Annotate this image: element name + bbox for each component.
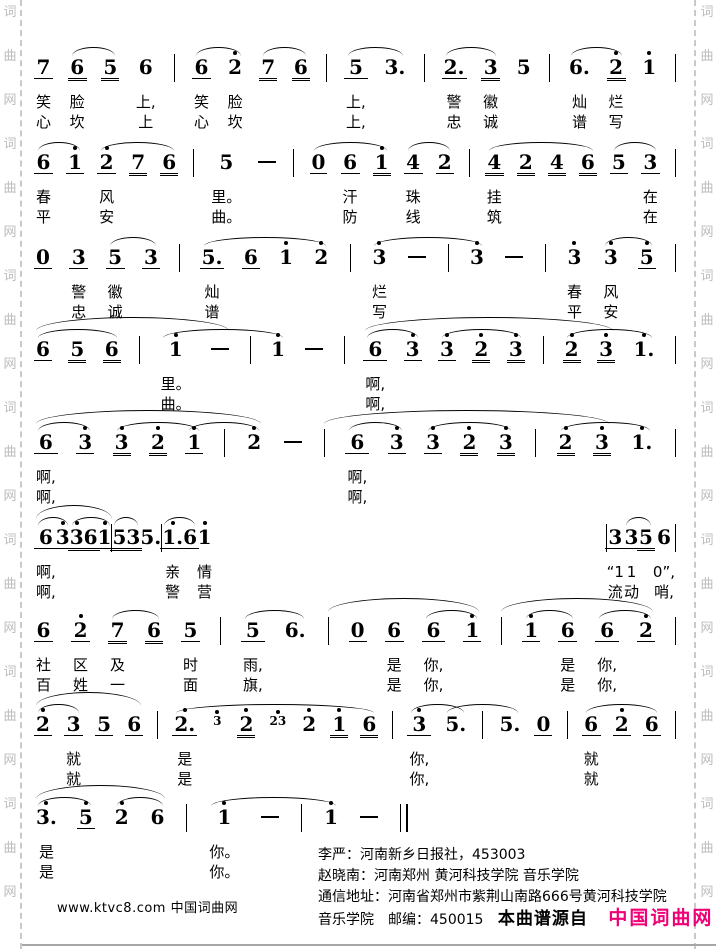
lyric-line2: 安 (99, 207, 114, 227)
note-cell: 6就就 (584, 707, 599, 789)
note-cell: 5.灿谱 (202, 240, 223, 322)
note-cell: 6汗防 (343, 145, 358, 227)
barline (224, 429, 225, 457)
lyric-line1: 烂 (372, 282, 387, 302)
note-number: 2 (565, 338, 579, 360)
note-number: 2 (74, 619, 88, 641)
barline (535, 429, 536, 457)
note-number: 1 (524, 619, 538, 641)
note-cell: 3 (115, 425, 129, 507)
slur-arc (176, 704, 374, 713)
lyric-line1: 笑 (36, 92, 51, 112)
lyric-line1: 时 (183, 655, 198, 675)
note-number: 5 (184, 619, 198, 641)
note-number: 3 (599, 338, 613, 360)
note-number: 6 (657, 526, 671, 548)
lyric-line2: 哨, (654, 582, 674, 602)
note-cell: 7笑心 (36, 50, 51, 132)
note-number: 2 (438, 151, 452, 173)
note-cell: 2 (559, 425, 573, 507)
note-number: 2 (559, 431, 573, 453)
note-number: 6 (194, 56, 208, 78)
lyric-line2: 安 (603, 302, 618, 322)
note-number: 3 (484, 56, 498, 78)
note-cell: 3 (509, 332, 523, 414)
note-number: 1 (332, 713, 346, 735)
note-number: 6 (584, 713, 598, 735)
note-number: 3 (499, 431, 513, 453)
note-cell: 5 (612, 145, 626, 227)
note-number: 4 (550, 151, 564, 173)
lyric-line1: 警 (447, 92, 462, 112)
note-cell: 3警忠 (71, 240, 86, 322)
note-cell: 0 (536, 707, 550, 789)
note-number: 2 (100, 151, 114, 173)
note-cell: 2脸坎 (228, 50, 243, 132)
slur-arc (571, 47, 622, 56)
note-number: 5 (103, 56, 117, 78)
note-cell: 1. (631, 425, 652, 507)
lyric-line2: 旗, (243, 675, 263, 695)
note-number: 6 (368, 338, 382, 360)
barline (675, 54, 676, 82)
note-cell: 3 (56, 520, 70, 602)
lyric-line1: 脸 (228, 92, 243, 112)
barline (675, 711, 676, 739)
note-cell: 6啊,啊, (36, 520, 56, 602)
lyric-line1: 挂 (487, 187, 502, 207)
note-cell: 2 (639, 613, 653, 695)
slur-arc (164, 517, 195, 526)
held-note-dash (211, 348, 229, 350)
lyric-line1: 1 (627, 562, 637, 582)
barline (392, 711, 393, 739)
note-cell: 6 (581, 145, 595, 227)
note-cell: 2 (247, 425, 261, 507)
note-cell: 7 (261, 50, 275, 132)
note-cell: 5. (499, 707, 520, 789)
lyric-line1: 徽 (483, 92, 498, 112)
note-number: 1 (375, 151, 389, 173)
note-number: 5 (349, 56, 363, 78)
note-number: 3 (470, 246, 484, 268)
note-cell: 6啊,啊, (36, 425, 56, 507)
note-cell: 3徽诚 (483, 50, 498, 132)
lyric-line1: 雨, (243, 655, 263, 675)
lyric-line2: 忠 (447, 112, 462, 132)
note-number: 6 (645, 713, 659, 735)
lyric-line1: 啊, (36, 562, 56, 582)
lyric-line1: 上, (346, 92, 366, 112)
note-number: 2 (609, 56, 623, 78)
note-cell: 3“1流 (607, 520, 624, 602)
score-line: 6啊,啊,3361535.1.亲警61情营3“1流31动560”,哨, (36, 520, 676, 602)
barline (675, 336, 676, 364)
lyric-line1: 你, (409, 749, 429, 769)
barline (350, 244, 351, 272)
lyric-line1: 是 (560, 655, 575, 675)
barline (186, 804, 187, 832)
note-cell: 0 (312, 145, 326, 227)
note-number: 6 (561, 619, 575, 641)
score-line: 23就就562.是是32232163你,你,5.5.06就就26 (36, 707, 676, 789)
note-cell: 2 (615, 707, 629, 789)
note-cell: 3在在 (643, 145, 658, 227)
note-cell: 2区姓 (73, 613, 88, 695)
note-number: 3 (440, 338, 454, 360)
note-cell: 6 (105, 332, 119, 414)
note-number: 2 (462, 431, 476, 453)
note-cell: 5雨,旗, (243, 613, 263, 695)
slur-arc (489, 142, 593, 151)
held-note-dash (284, 441, 302, 443)
lyric-line1: 就 (584, 749, 599, 769)
lyric-line1: 警 (71, 282, 86, 302)
note-cell: 6 (183, 520, 197, 602)
note-number: 1 (271, 338, 285, 360)
note-cell: 3 (426, 425, 440, 507)
note-number: 6 (350, 431, 364, 453)
note-number: 1. (633, 338, 654, 360)
note-cell: 4珠线 (406, 145, 421, 227)
note-number: 6 (151, 806, 165, 828)
note-number: 6 (581, 151, 595, 173)
score-line: 6社百2区姓7及一65时面5雨,旗,6.06是是6你,你,116是是6你,你,2 (36, 613, 676, 695)
lyric-line2: 是 (387, 675, 402, 695)
lyric-line1: 春 (567, 282, 582, 302)
lyric-line2: 营 (197, 582, 212, 602)
note-number: 0 (351, 619, 365, 641)
barline (501, 617, 502, 645)
note-number: 6 (362, 713, 376, 735)
note-cell: 1. (633, 332, 654, 414)
note-cell: 6春平 (36, 145, 51, 227)
source-note: 本曲谱源自 (498, 909, 588, 929)
note-cell: 3你,你, (409, 707, 429, 789)
lyric-line1: 笑 (194, 92, 209, 112)
lyric-line2: 心 (194, 112, 209, 132)
note-cell: 3 (499, 425, 513, 507)
barline (293, 149, 294, 177)
note-number: 5 (97, 713, 111, 735)
barline (675, 244, 676, 272)
lyric-line2: 是 (39, 862, 54, 882)
barline (545, 244, 546, 272)
note-number: 1 (324, 806, 338, 828)
held-note-dash (505, 256, 523, 258)
lyric-line1: 社 (36, 655, 51, 675)
note-cell: 2.警忠 (444, 50, 465, 132)
barline (448, 244, 449, 272)
note-cell: 6 (84, 520, 98, 602)
note-cell: 2 (115, 800, 129, 882)
note-cell: 5 (79, 800, 93, 882)
note-number: 2 (115, 806, 129, 828)
note-number: 0 (312, 151, 326, 173)
note-number: 3 (373, 246, 387, 268)
note-number: 23 (269, 715, 286, 727)
note-number: 6 (36, 338, 50, 360)
lyric-line1: 区 (73, 655, 88, 675)
note-number: 2 (519, 151, 533, 173)
note-number: 3 (604, 246, 618, 268)
note-cell: 3 (390, 425, 404, 507)
barline (549, 54, 550, 82)
lyric-line2: 你。 (209, 862, 239, 882)
note-number: 2 (239, 713, 253, 735)
note-cell: 6 (362, 707, 376, 789)
note-number: 2 (314, 246, 328, 268)
lyric-line1: 春 (36, 187, 51, 207)
lyric-line2: 啊, (36, 487, 56, 507)
lyric-line2: 在 (643, 207, 658, 227)
note-cell: 5. (140, 520, 161, 602)
barline (424, 54, 425, 82)
note-cell: 6 (294, 50, 308, 132)
note-cell: 6脸坎 (70, 50, 85, 132)
note-cell: 2 (302, 707, 316, 789)
note-number: 3 (78, 431, 92, 453)
note-number: 5 (517, 56, 531, 78)
note-number: 2 (302, 713, 316, 735)
barline (220, 617, 221, 645)
note-cell: 7 (131, 145, 145, 227)
note-cell: 6你,你, (424, 613, 444, 695)
note-cell: 1 (465, 613, 479, 695)
note-number: 5 (79, 806, 93, 828)
slur-arc (101, 142, 174, 151)
note-cell: 2 (438, 145, 452, 227)
note-number: 1 (642, 56, 656, 78)
note-number: 6 (147, 619, 161, 641)
barline (344, 336, 345, 364)
lyric-line1: 就 (66, 749, 81, 769)
note-number: 1 (465, 619, 479, 641)
lyric-line2: 警 (165, 582, 180, 602)
lyric-line1: 里。 (211, 187, 241, 207)
note-cell: 5徽诚 (108, 240, 123, 322)
note-number: 6 (162, 151, 176, 173)
note-number: 3 (412, 713, 426, 735)
lyric-line2: 防 (343, 207, 358, 227)
score-line: 6春平12风安765里。曲。06汗防14珠线24挂筑24653在在 (36, 145, 676, 227)
lyric-line1: 及 (110, 655, 125, 675)
lyric-line2: 啊, (36, 582, 56, 602)
note-number: 4 (406, 151, 420, 173)
note-number: 2 (36, 713, 50, 735)
note-number: 2 (151, 431, 165, 453)
lyric-line2: 心 (36, 112, 51, 132)
note-number: 3 (406, 338, 420, 360)
note-cell: 3 (126, 520, 140, 602)
note-number: 5. (445, 713, 466, 735)
barline (469, 149, 470, 177)
lyric-line1: 0”, (653, 562, 675, 582)
lyric-line2: 诚 (483, 112, 498, 132)
note-cell: 3 (440, 332, 454, 414)
lyric-line2: 面 (183, 675, 198, 695)
note-number: 1 (198, 526, 212, 548)
note-number: 2 (228, 56, 242, 78)
note-number: 3 (70, 526, 84, 548)
barline (139, 336, 140, 364)
note-cell: 5里。曲。 (211, 145, 241, 227)
slur-arc (72, 47, 115, 56)
note-cell: 6. (285, 613, 306, 695)
note-number: 6. (285, 619, 306, 641)
slur-arc (408, 142, 450, 151)
note-number: 1 (279, 246, 293, 268)
note-number: 6 (427, 619, 441, 641)
barline (675, 429, 676, 457)
lyric-line2: 你, (424, 675, 444, 695)
note-number: 5 (108, 246, 122, 268)
note-cell: 3 (406, 332, 420, 414)
barline (675, 617, 676, 645)
note-cell: 1 (68, 145, 82, 227)
note-number: 3 (72, 246, 86, 268)
barline (174, 54, 175, 82)
note-cell: 6 (645, 707, 659, 789)
note-number: 1 (68, 151, 82, 173)
note-cell: 60”,哨, (653, 520, 675, 602)
note-cell: 1你。你。 (209, 800, 239, 882)
note-cell: 3 (599, 332, 613, 414)
note-cell: 2 (474, 332, 488, 414)
note-number: 1 (98, 526, 112, 548)
note-number: 1 (187, 431, 201, 453)
score-line: 6561里。曲。16啊,啊,3323231. (36, 332, 676, 414)
note-number: 1 (217, 806, 231, 828)
lyric-line2: 啊, (347, 487, 367, 507)
note-cell: 3就就 (66, 707, 81, 789)
held-note-dash (360, 816, 378, 818)
note-number: 2. (174, 713, 195, 735)
note-cell: 6笑心 (194, 50, 209, 132)
note-number: 3. (36, 806, 57, 828)
note-number: 6 (183, 526, 197, 548)
lyric-line2: 筑 (487, 207, 502, 227)
lyric-line2: 动 (624, 582, 639, 602)
note-cell: 0 (351, 613, 365, 695)
lyric-line1: 啊, (347, 467, 367, 487)
barline (328, 617, 329, 645)
note-number: 1. (162, 526, 183, 548)
note-number: 3 (509, 338, 523, 360)
note-number: 5 (640, 246, 654, 268)
slur-arc (211, 797, 336, 806)
note-number: 3 (390, 431, 404, 453)
barline (543, 336, 544, 364)
note-cell: 1情营 (197, 520, 212, 602)
lyric-line2: 坎 (228, 112, 243, 132)
note-cell: 6 (244, 240, 258, 322)
note-number: 3 (625, 526, 639, 548)
lyric-line1: 情 (197, 562, 212, 582)
lyric-line1: 风 (99, 187, 114, 207)
note-cell: 6你,你, (597, 613, 617, 695)
note-cell: 3 (470, 240, 484, 322)
lyric-line2: 平 (567, 302, 582, 322)
note-number: 5. (499, 713, 520, 735)
note-cell: 5 (112, 520, 126, 602)
note-cell: 6上,上 (136, 50, 156, 132)
note-number: 6 (387, 619, 401, 641)
note-cell: 2 (239, 707, 253, 789)
lyric-line2: 百 (36, 675, 51, 695)
note-number: 6 (244, 246, 258, 268)
note-cell: 3. (384, 50, 405, 132)
note-cell: 6.灿谱 (569, 50, 590, 132)
lyric-line2: 写 (609, 112, 624, 132)
note-cell: 3.是是 (36, 800, 57, 882)
note-cell: 3 (595, 425, 609, 507)
lyric-line1: 啊, (36, 467, 56, 487)
barline (301, 804, 302, 832)
note-cell: 5 (517, 50, 531, 132)
note-number: 6 (139, 56, 153, 78)
note-number: 3 (608, 526, 622, 548)
note-cell: 7及一 (110, 613, 125, 695)
note-number: 6 (37, 151, 51, 173)
slur-arc (196, 47, 241, 56)
note-number: 3 (595, 431, 609, 453)
barline (482, 711, 483, 739)
note-cell: 2 (462, 425, 476, 507)
note-number: 3 (56, 526, 70, 548)
barline (675, 524, 676, 552)
slur-arc (446, 47, 496, 56)
note-number: 5. (140, 526, 161, 548)
note-cell: 5 (640, 240, 654, 322)
barline (179, 244, 180, 272)
note-cell: 4挂筑 (487, 145, 502, 227)
note-number: 7 (111, 619, 125, 641)
note-cell: 1 (375, 145, 389, 227)
slur-arc (314, 142, 387, 151)
note-number: 5 (612, 151, 626, 173)
score-line: 7笑心6脸坎56上,上6笑心2脸坎765上,上,3.2.警忠3徽诚56.灿谱2烂… (36, 50, 676, 132)
lyric-line2: 坎 (70, 112, 85, 132)
note-cell: 2风安 (99, 145, 114, 227)
lyric-line1: 亲 (165, 562, 180, 582)
note-number: 3 (213, 715, 221, 727)
lyric-line2: 上 (138, 112, 153, 132)
note-cell: 5. (445, 707, 466, 789)
lyric-line2: 写 (372, 302, 387, 322)
note-number: 5. (202, 246, 223, 268)
note-number: 6 (600, 619, 614, 641)
note-cell: 6是是 (387, 613, 402, 695)
note-number: 3 (643, 151, 657, 173)
footer-credits: 李严：河南新乡日报社，453003 赵晓南：河南郑州 黄河科技学院 音乐学院 通… (318, 845, 713, 931)
note-cell: 2.是是 (174, 707, 195, 789)
lyric-line1: 你。 (209, 842, 239, 862)
barline (326, 54, 327, 82)
lyric-line2: 谱 (205, 302, 220, 322)
note-cell: 5 (70, 332, 84, 414)
lyric-line1: 脸 (70, 92, 85, 112)
note-cell: 4 (550, 145, 564, 227)
note-number: 3 (115, 431, 129, 453)
note-number: 6 (39, 431, 53, 453)
note-number: 3 (426, 431, 440, 453)
note-cell: 5 (97, 707, 111, 789)
credit-line-postcode: 音乐学院 邮编：450015 本曲谱源自 中国词曲网 (318, 908, 713, 931)
note-cell: 1 (642, 50, 656, 132)
note-cell: 2烂写 (609, 50, 624, 132)
barline (324, 429, 325, 457)
